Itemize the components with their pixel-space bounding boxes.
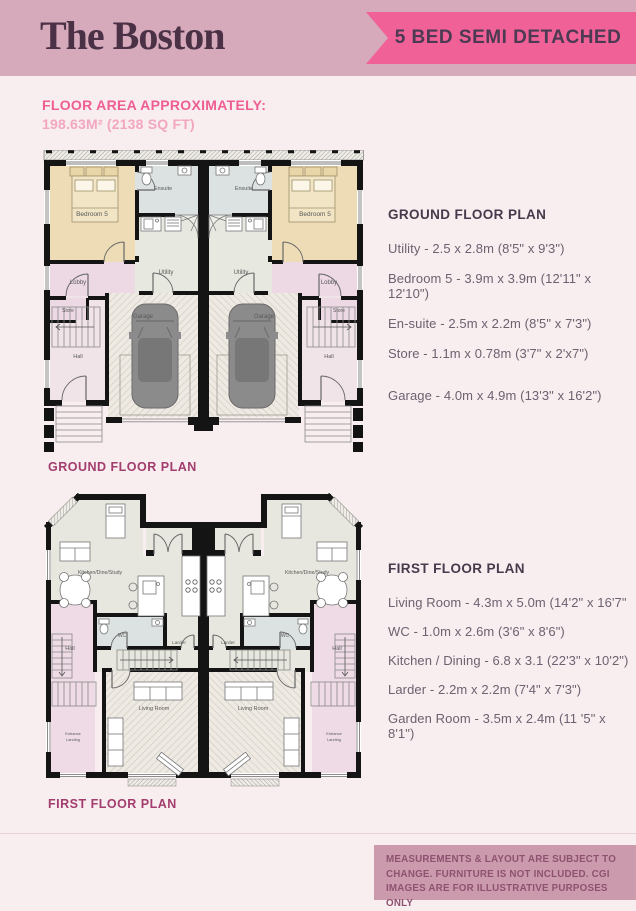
room-label-wc: WC (281, 633, 290, 639)
banner-label: 5 BED SEMI DETACHED (395, 27, 622, 49)
room-label-wc: WC (118, 633, 127, 639)
first-floor-spec-list: Living Room - 4.3m x 5.0m (14'2" x 16'7"… (388, 595, 630, 741)
room-label-entrance: Landing (66, 737, 80, 742)
planters (44, 408, 54, 452)
room-label-utility: Utility (234, 270, 249, 276)
room-label-garage: Garage (133, 314, 154, 320)
ground-floor-spec-panel: GROUND FLOOR PLAN Utility - 2.5 x 2.8m (… (388, 207, 630, 403)
utility-sink-icon (141, 217, 161, 231)
spec-row: Kitchen / Dining - 6.8 x 3.1 (22'3" x 10… (388, 653, 630, 668)
ground-floor-left-house (44, 160, 204, 452)
disclaimer-box: MEASUREMENTS & LAYOUT ARE SUBJECT TO CHA… (374, 845, 636, 900)
dining-table-icon (60, 573, 91, 608)
room-label-bedroom: Bedroom 5 (299, 211, 331, 218)
room-label-kitchen: Kitchen/Dine/Study (78, 570, 123, 576)
room-label-ensuite: Ensuite (235, 186, 253, 192)
counter-hob-icon (182, 556, 200, 616)
spec-row: Bedroom 5 - 3.9m x 3.9m (12'11" x 12'10"… (388, 271, 630, 301)
room-label-hall: Hall (65, 646, 74, 652)
first-floor-panel-heading: FIRST FLOOR PLAN (388, 561, 630, 576)
room-label-ensuite: Ensuite (154, 186, 172, 192)
room-label-entrance: Entrance (326, 731, 342, 736)
spec-row: Store - 1.1m x 0.78m (3'7" x 2'x7") (388, 346, 630, 361)
toilet-icon (141, 167, 152, 185)
sink-icon (178, 166, 191, 175)
ground-floor-plan-drawing: Bedroom 5 Bedroom 5 Ensuite Ensuite Util… (42, 150, 365, 456)
banner-ribbon: 5 BED SEMI DETACHED (366, 12, 636, 64)
room-label-store: Store (333, 308, 345, 314)
entrance-steps (56, 406, 102, 442)
first-floor-spec-panel: FIRST FLOOR PLAN Living Room - 4.3m x 5.… (388, 561, 630, 755)
floor-area-label: FLOOR AREA APPROXIMATELY: (42, 97, 266, 113)
room-label-larder: Larder (172, 640, 186, 646)
spec-row: Utility - 2.5 x 2.8m (8'5" x 9'3") (388, 241, 630, 256)
first-floor-caption: FIRST FLOOR PLAN (48, 797, 177, 811)
spec-row: Larder - 2.2m x 2.2m (7'4" x 7'3") (388, 682, 630, 697)
room-label-kitchen: Kitchen/Dine/Study (285, 570, 330, 576)
room-label-bedroom: Bedroom 5 (76, 211, 108, 218)
first-floor-left-house (46, 494, 204, 786)
room-label-store: Store (62, 308, 74, 314)
floor-area-value: 198.63M² (2138 SQ FT) (42, 116, 195, 132)
sink-icon (152, 619, 163, 626)
toilet-icon (99, 619, 109, 634)
room-label-hall: Hall (332, 646, 341, 652)
side-unit-icon (108, 718, 123, 766)
washer-icon (165, 217, 181, 231)
tall-unit-icon (106, 504, 125, 538)
room-label-entrance: Landing (327, 737, 341, 742)
spec-row: En-suite - 2.5m x 2.2m (8'5" x 7'3") (388, 316, 630, 331)
ground-floor-spec-list: Utility - 2.5 x 2.8m (8'5" x 9'3")Bedroo… (388, 241, 630, 361)
roof-eaves-hatch (44, 150, 364, 160)
room-label-lobby: Lobby (321, 280, 337, 286)
spec-row: WC - 1.0m x 2.6m (3'6" x 8'6") (388, 624, 630, 639)
garage-spec-row: Garage - 4.0m x 4.9m (13'3" x 16'2") (388, 388, 630, 403)
room-label-living: Living Room (238, 706, 269, 712)
room-label-entrance: Entrance (65, 731, 81, 736)
ground-floor-caption: GROUND FLOOR PLAN (48, 460, 197, 474)
room-label-living: Living Room (139, 706, 170, 712)
page-title: The Boston (40, 12, 225, 59)
room-label-lobby: Lobby (70, 280, 86, 286)
spec-row: Living Room - 4.3m x 5.0m (14'2" x 16'7" (388, 595, 630, 610)
sofa-icon (134, 682, 182, 700)
room-label-hall: Hall (73, 354, 82, 360)
spec-row: Garden Room - 3.5m x 2.4m (11 '5" x 8'1"… (388, 711, 630, 741)
room-label-garage: Garage (254, 314, 275, 320)
room-label-hall: Hall (324, 354, 333, 360)
sofa-icon (60, 542, 90, 561)
first-floor-plan-drawing: Kitchen/Dine/Study Kitchen/Dine/Study Ha… (42, 486, 365, 790)
footer-divider (0, 833, 636, 834)
ground-floor-panel-heading: GROUND FLOOR PLAN (388, 207, 630, 222)
room-label-larder: Larder (221, 640, 235, 646)
room-label-utility: Utility (159, 270, 174, 276)
